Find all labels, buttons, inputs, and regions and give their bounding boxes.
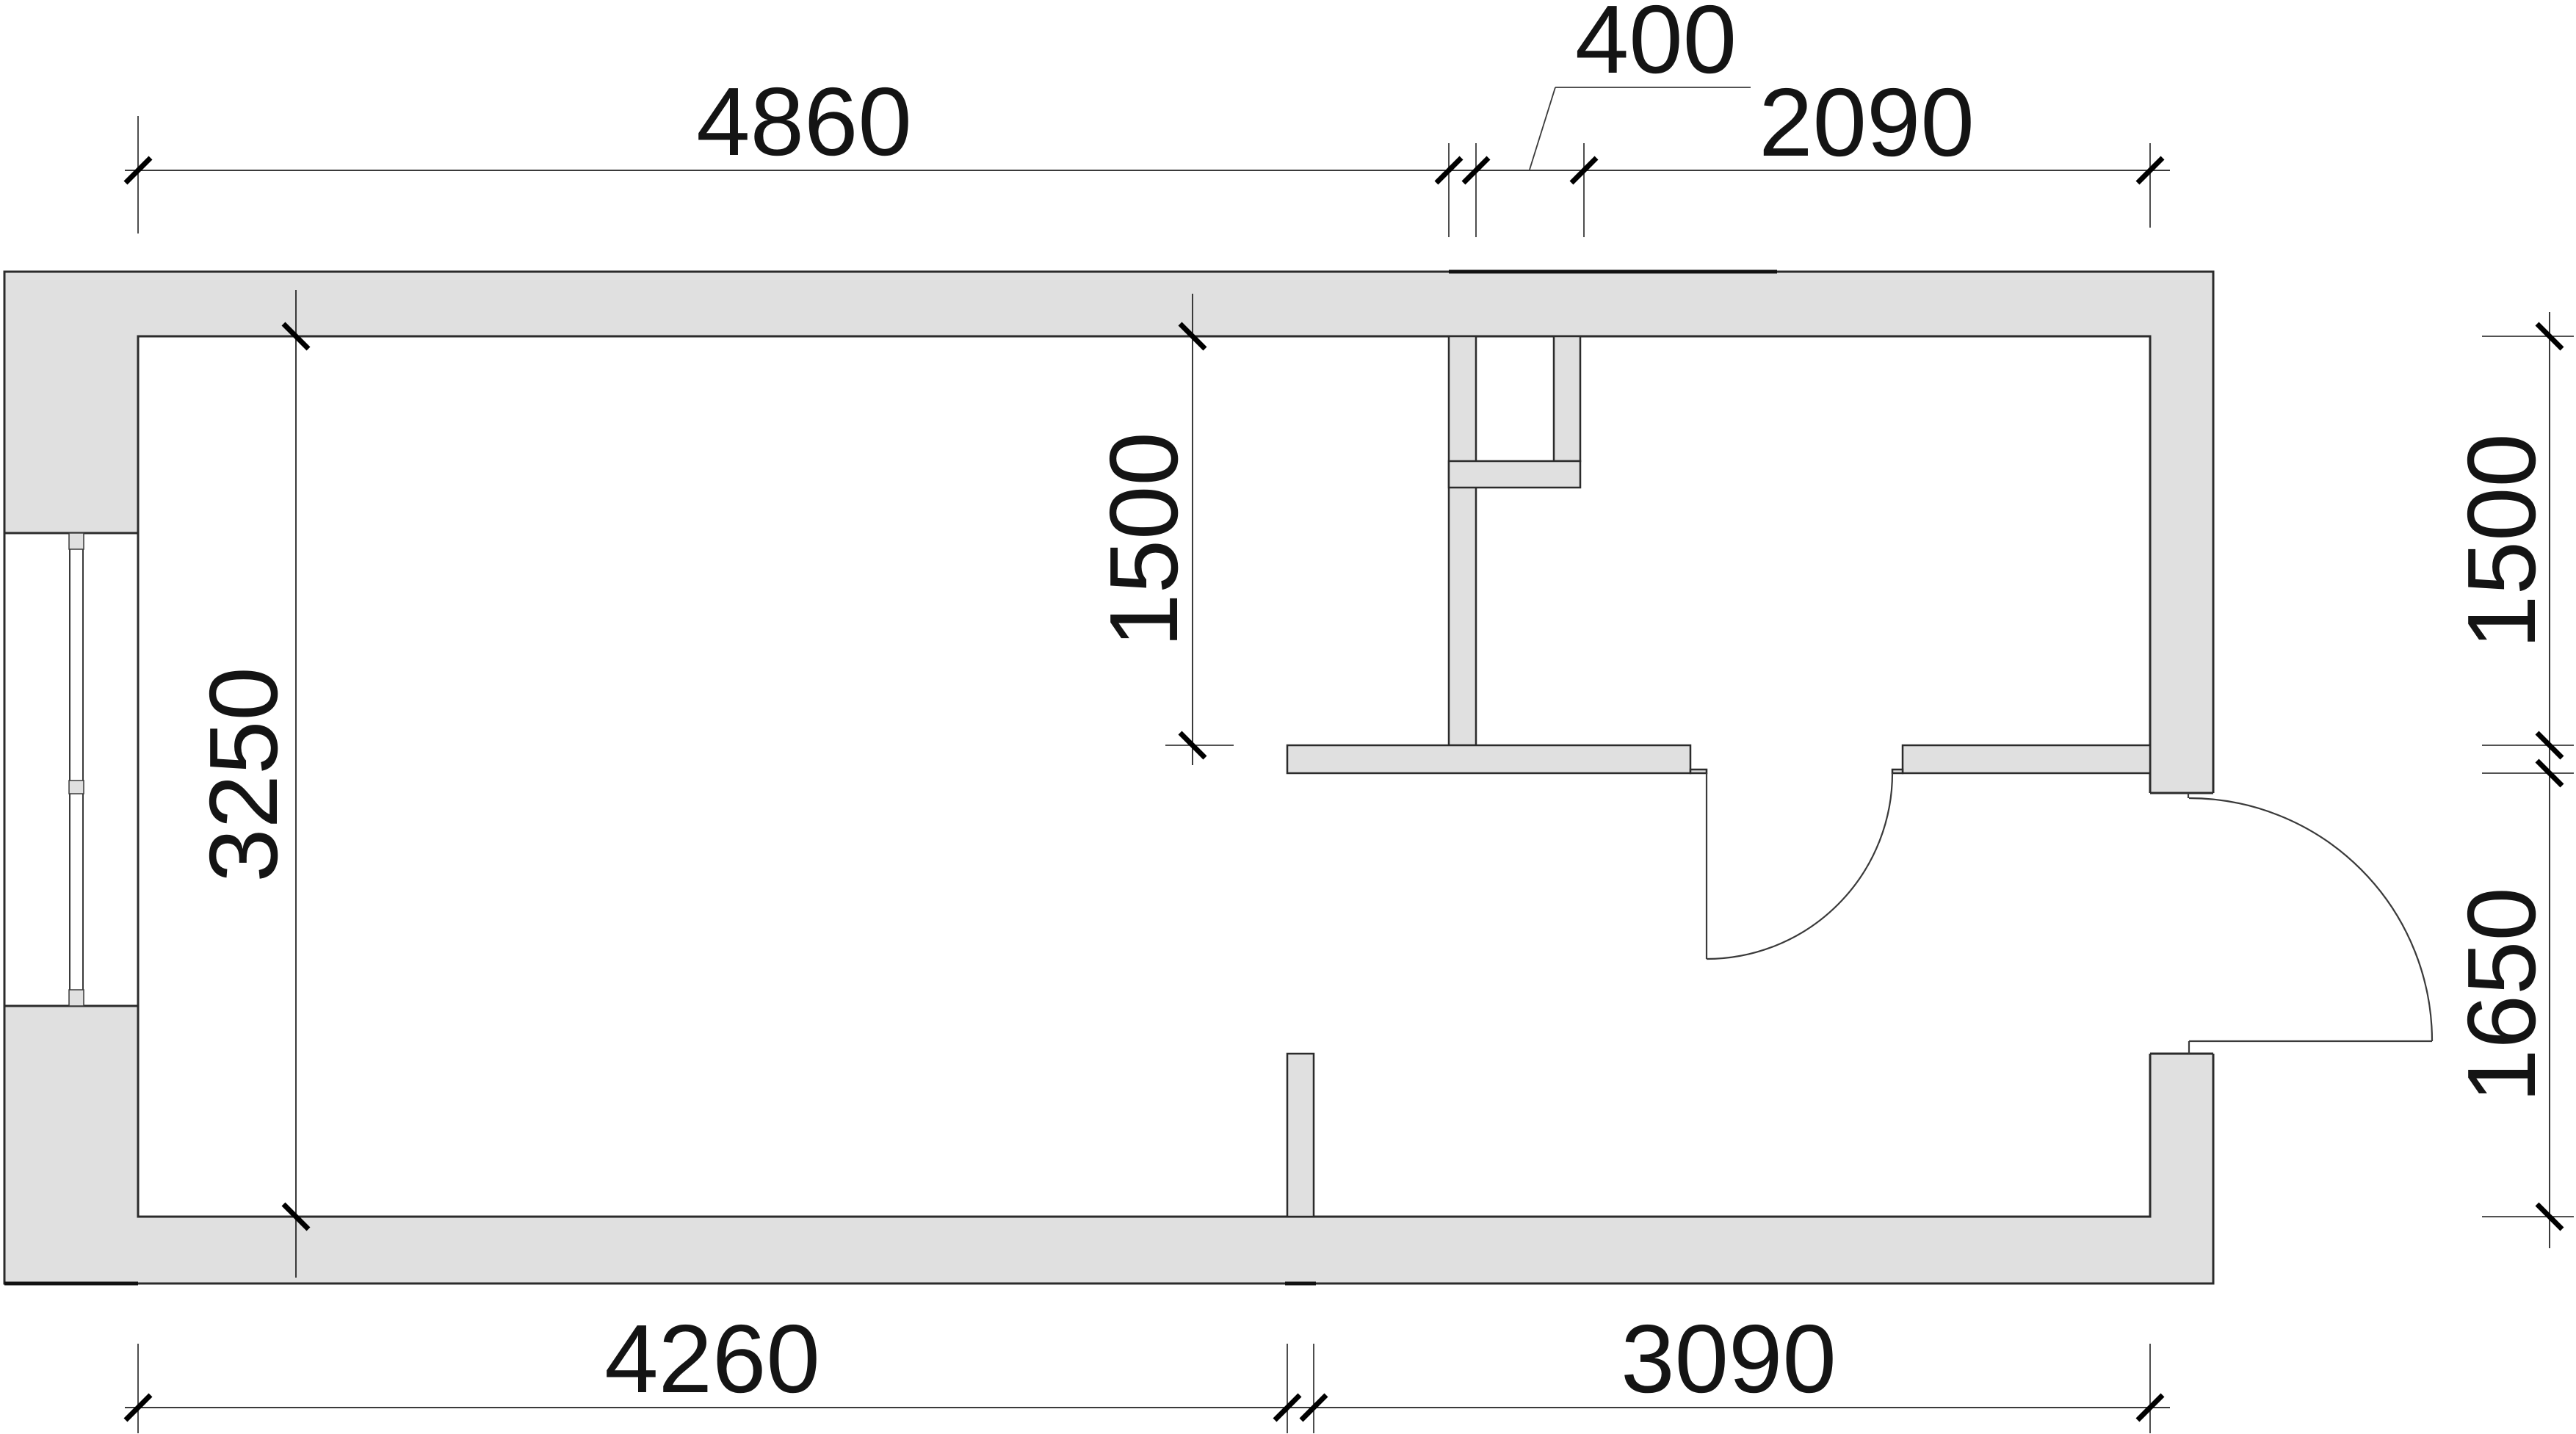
dim-label-1500-mid: 1500 [1090, 432, 1198, 648]
left-wall-lower-pier [4, 1006, 138, 1283]
top-wall [4, 272, 2213, 336]
left-wall-upper-pier [4, 272, 138, 533]
outer-boundary-line [4, 272, 2213, 1283]
dim-label-4860: 4860 [696, 68, 912, 175]
dimension-top: 4860 400 2090 [125, 0, 2170, 237]
dim-label-1650: 1650 [2447, 887, 2555, 1103]
window-mullion-top [69, 533, 84, 549]
dimension-mid-1500: 1500 [1090, 294, 1234, 765]
dimension-left-3250: 3250 [189, 290, 308, 1278]
window [69, 533, 84, 1006]
dimension-right: 1500 1650 [2447, 312, 2574, 1248]
dim-label-2090: 2090 [1759, 68, 1975, 176]
floor-plan-canvas: 4860 400 2090 4260 3090 3250 1500 [0, 0, 2576, 1434]
right-wall-lower [2150, 1054, 2213, 1283]
stub-wall-bottom [1287, 1054, 1314, 1217]
shaft-wall-vertical [1554, 336, 1580, 461]
interior-door-swing-arc [1707, 773, 1892, 959]
exterior-wall-outlines [4, 272, 2213, 1283]
bottom-wall [4, 1217, 2213, 1283]
entry-door [2188, 793, 2432, 1054]
shaft-wall-horizontal [1449, 461, 1580, 488]
exterior-walls [4, 272, 2213, 1283]
partition-horizontal-right [1903, 745, 2150, 773]
partition-vertical-main [1449, 336, 1476, 745]
entry-door-swing-arc [2189, 798, 2432, 1041]
window-mullion-bottom [69, 990, 84, 1006]
floor-plan-drawing: 4860 400 2090 4260 3090 3250 1500 [0, 0, 2576, 1434]
door-sill-right [1892, 769, 1903, 773]
window-mullion-middle [69, 781, 84, 794]
partition-horizontal-left [1287, 745, 1690, 773]
dim-label-3090: 3090 [1621, 1305, 1837, 1413]
right-wall-upper [2150, 272, 2213, 793]
dim-label-3250: 3250 [189, 667, 297, 883]
dim-label-4260: 4260 [604, 1305, 820, 1413]
interior-walls [1287, 336, 2150, 1217]
interior-door [1707, 773, 1892, 959]
dimension-bottom: 4260 3090 [125, 1305, 2170, 1433]
door-sill-left [1690, 769, 1707, 773]
dim-label-1500-right: 1500 [2447, 433, 2555, 649]
dim-label-400: 400 [1575, 0, 1737, 93]
dim-400-leader [1530, 87, 1555, 170]
